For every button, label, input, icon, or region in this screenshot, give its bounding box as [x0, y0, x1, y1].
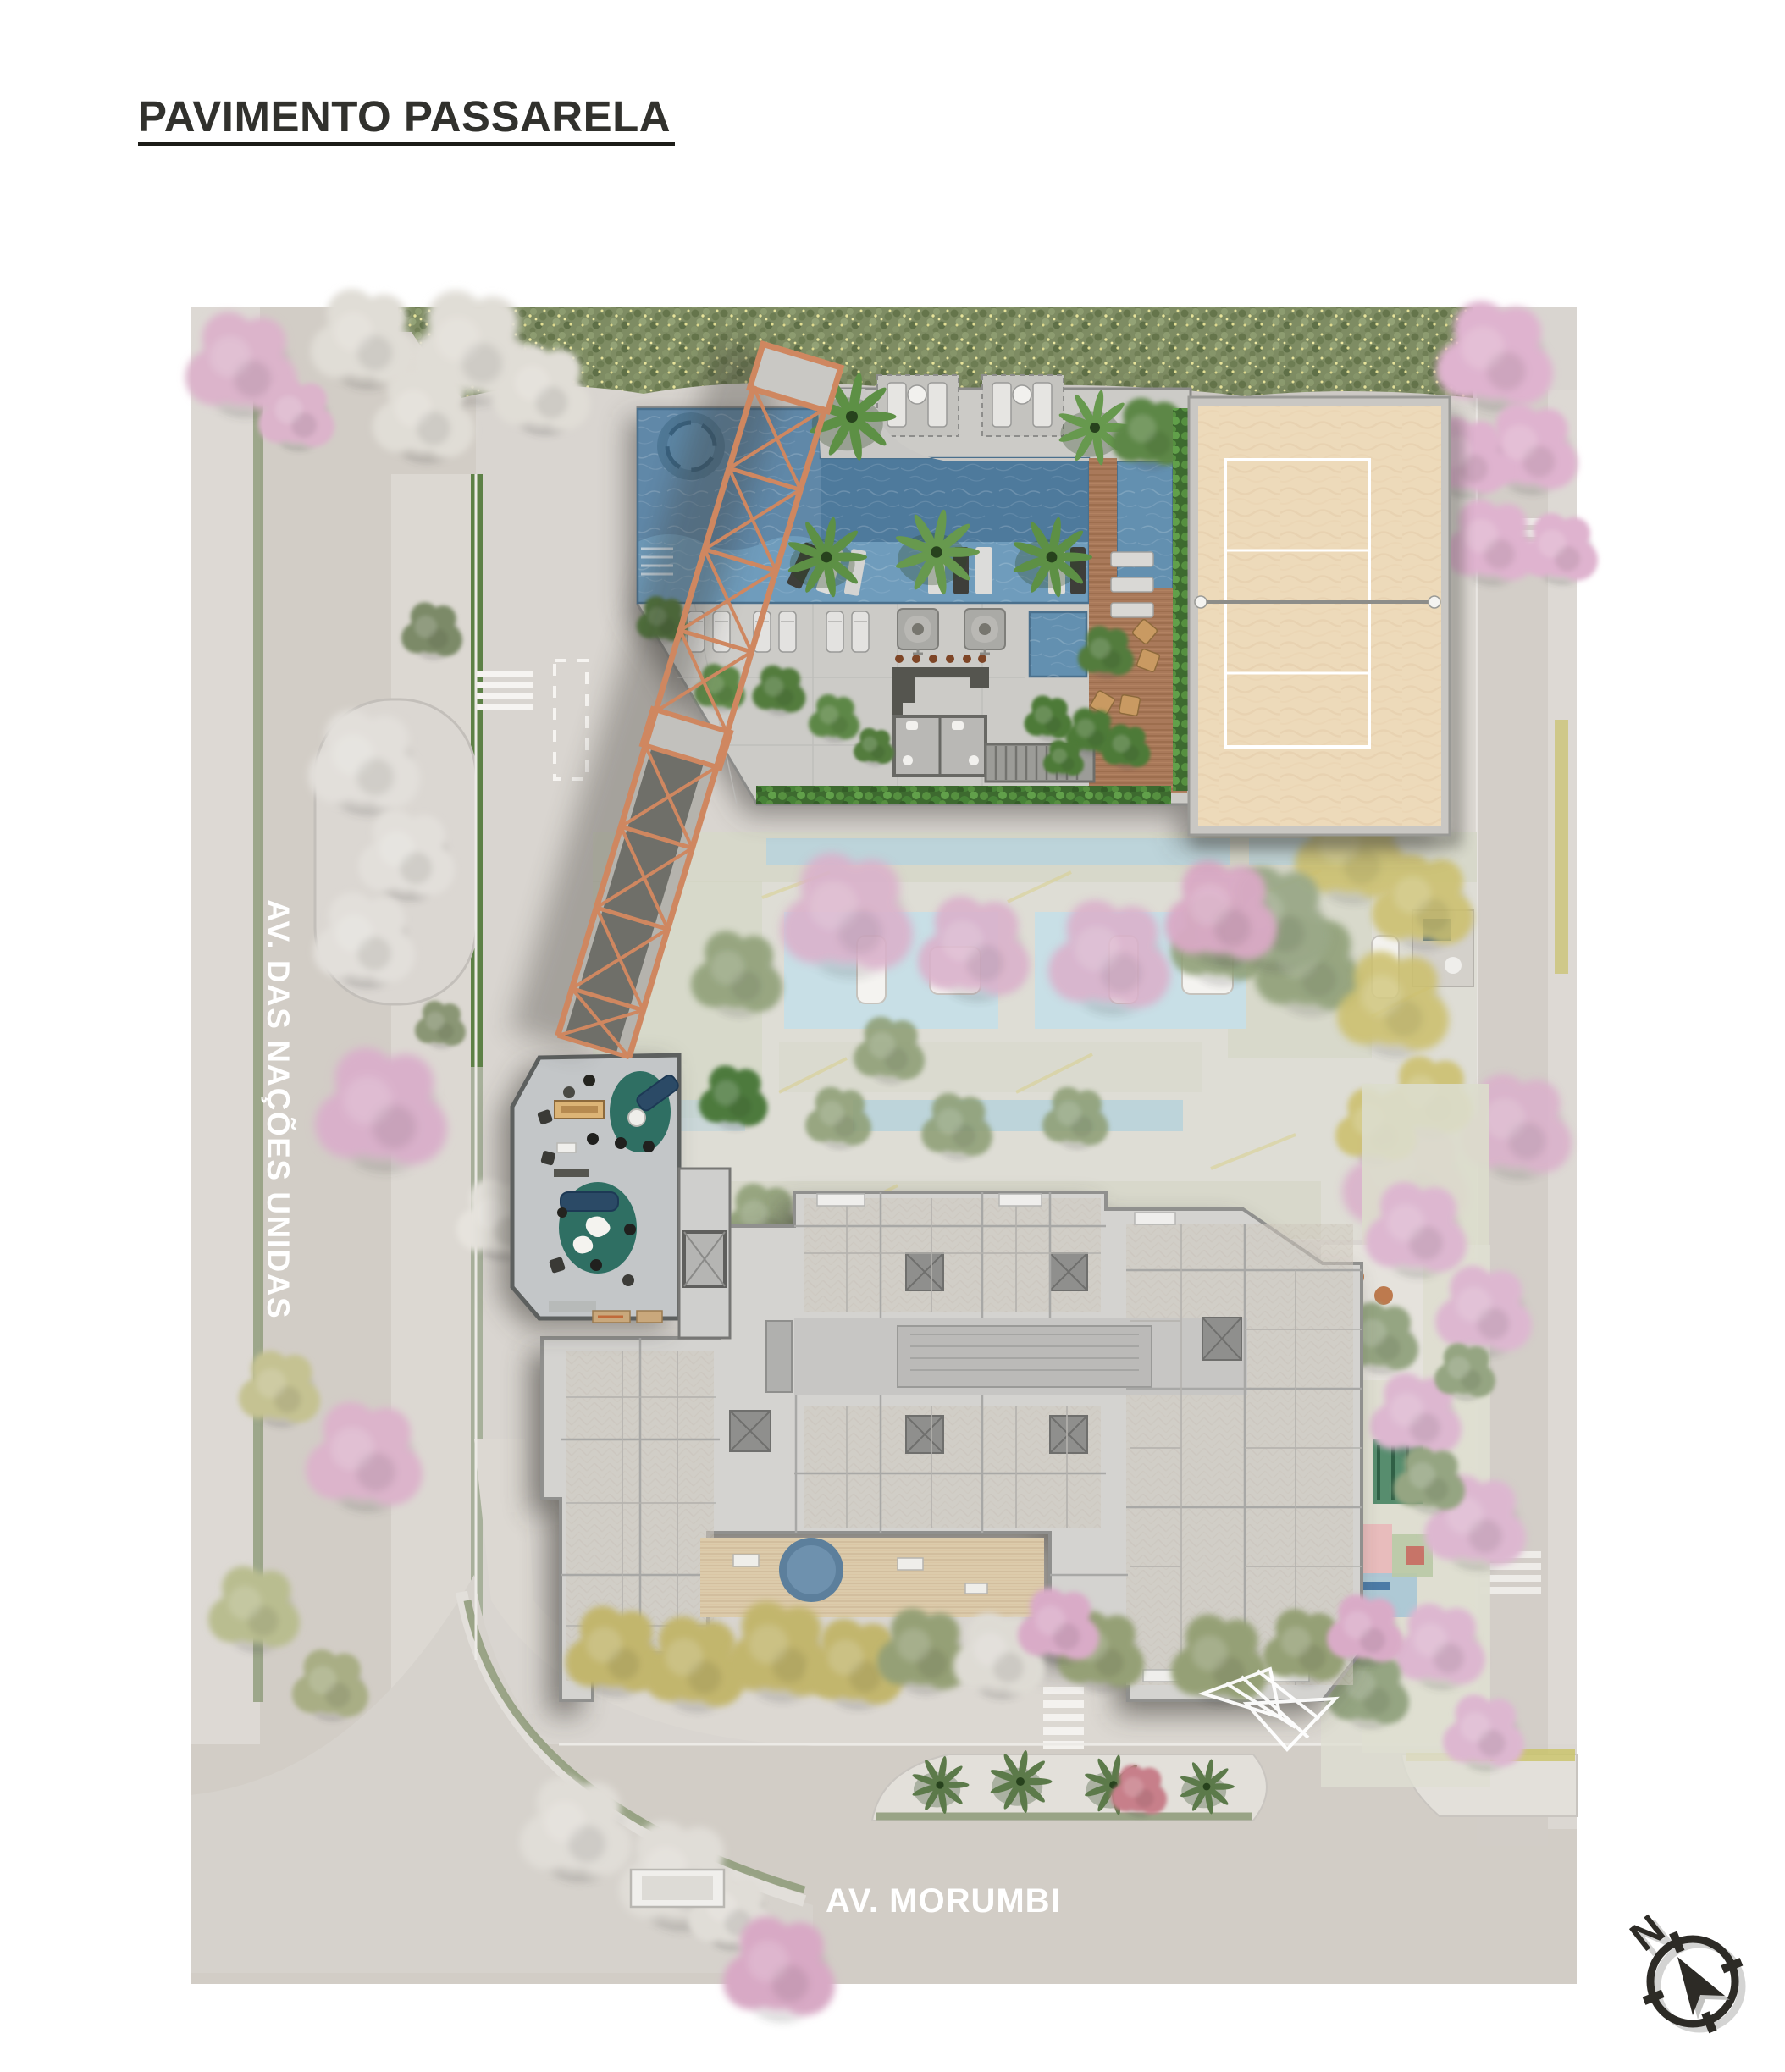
svg-text:AV. MORUMBI: AV. MORUMBI [826, 1882, 1061, 1920]
svg-text:PAVIMENTO PASSARELA: PAVIMENTO PASSARELA [138, 92, 671, 141]
svg-text:AV. DAS NAÇÕES UNIDAS: AV. DAS NAÇÕES UNIDAS [261, 899, 296, 1319]
